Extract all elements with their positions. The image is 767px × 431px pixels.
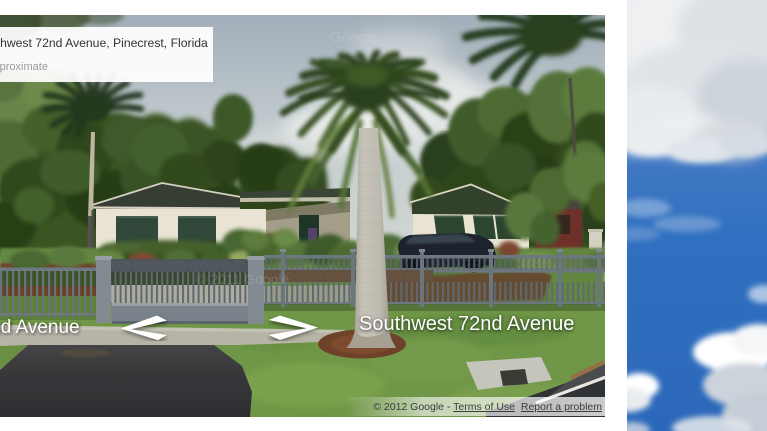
svg-text:© 2011 Google: © 2011 Google <box>196 271 290 287</box>
svg-text:Google: Google <box>330 29 378 46</box>
